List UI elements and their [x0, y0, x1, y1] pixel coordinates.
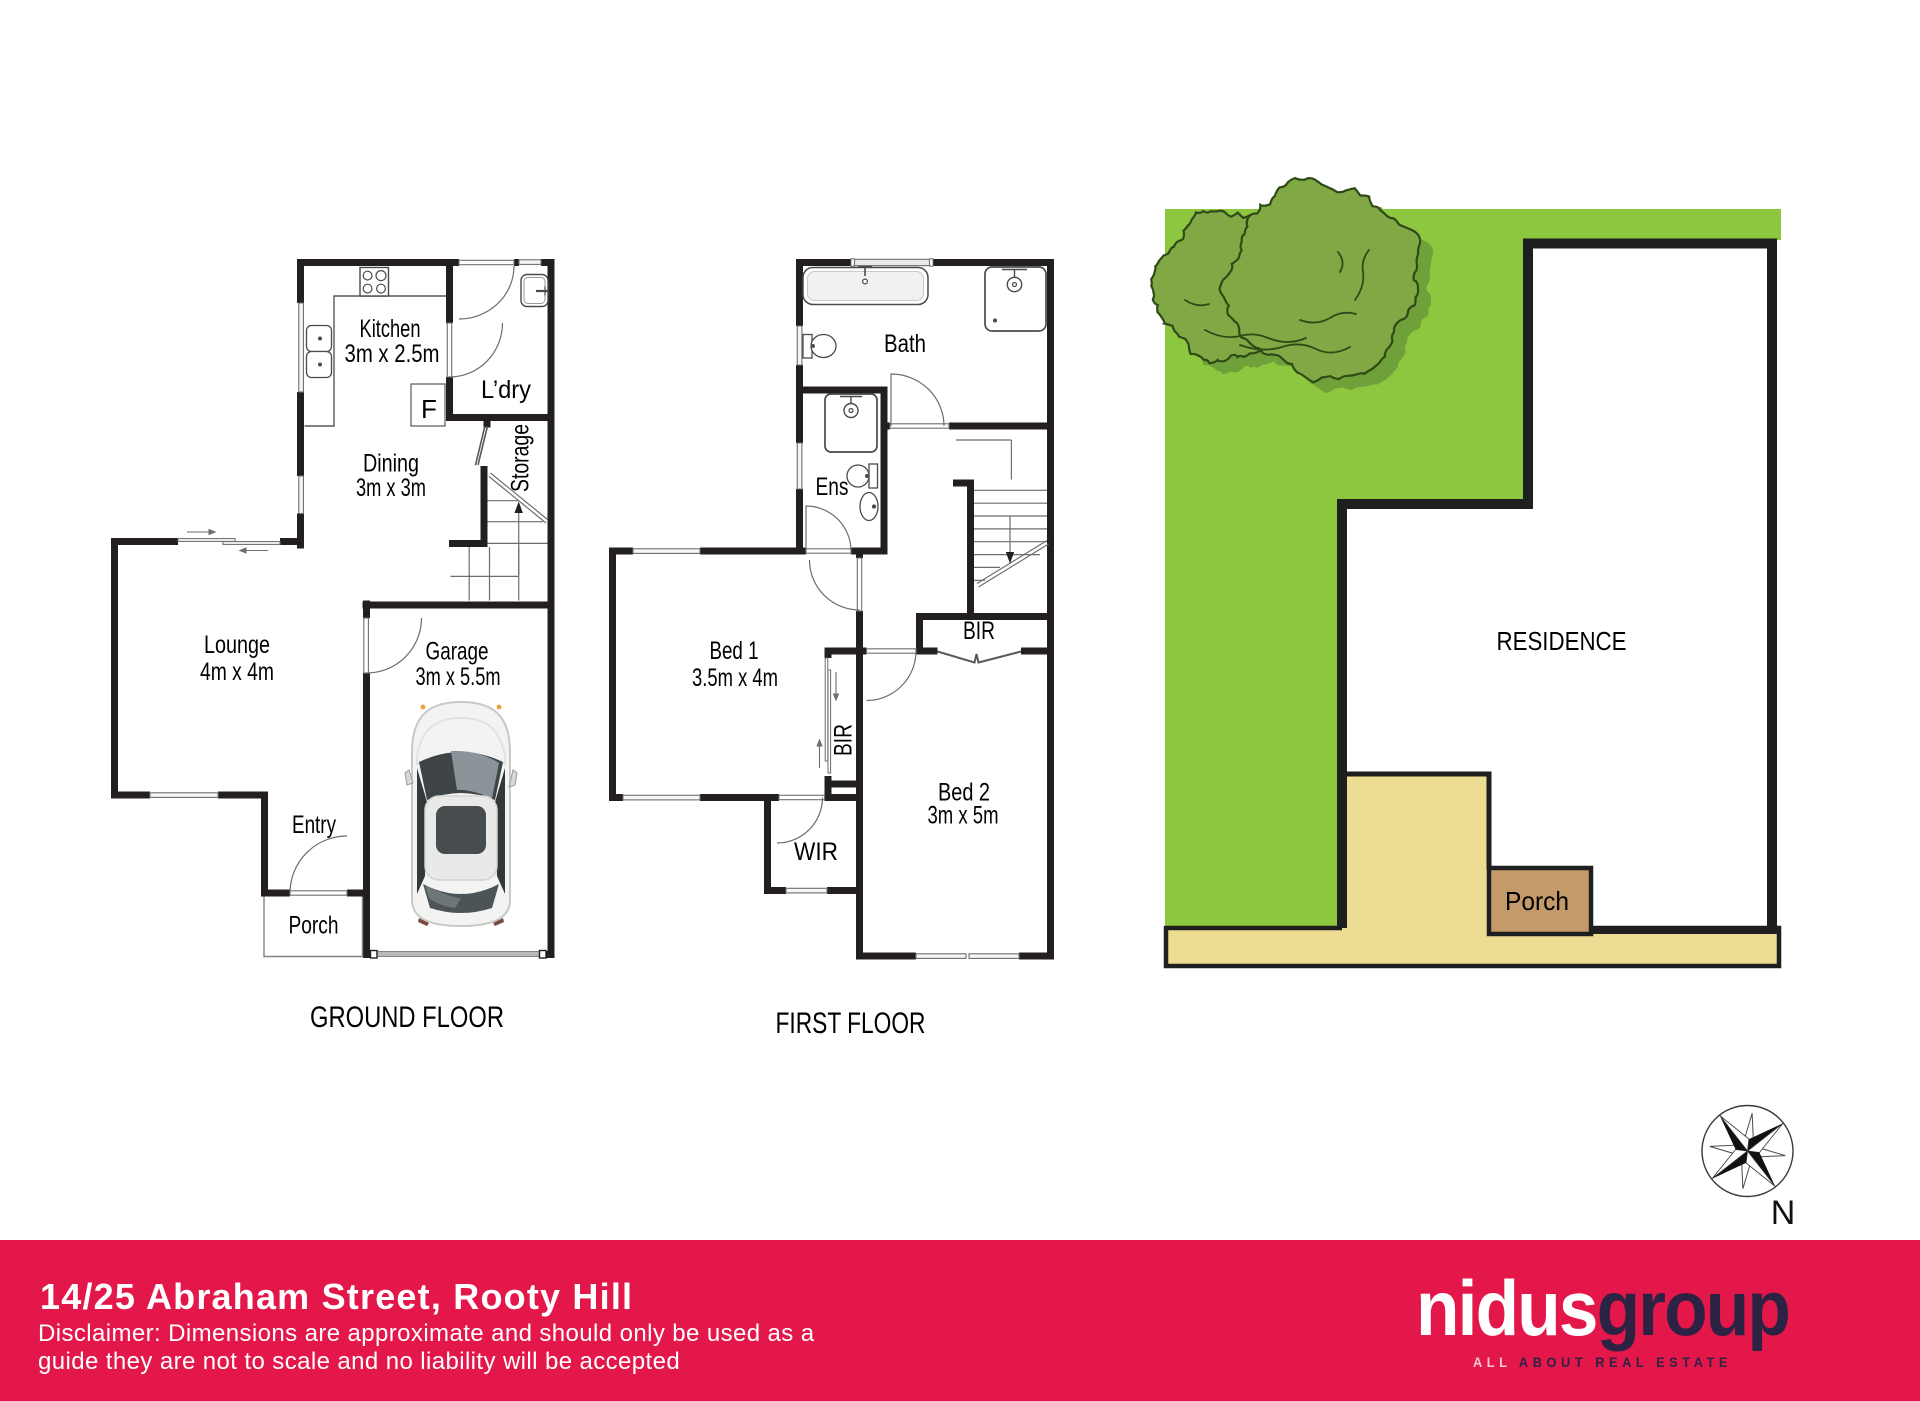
svg-text:Ens: Ens	[816, 473, 849, 501]
svg-text:Kitchen: Kitchen	[360, 315, 421, 343]
svg-text:L’dry: L’dry	[481, 376, 531, 404]
svg-text:RESIDENCE: RESIDENCE	[1497, 626, 1627, 656]
svg-text:FIRST FLOOR: FIRST FLOOR	[776, 1007, 926, 1040]
svg-text:WIR: WIR	[794, 838, 838, 866]
svg-text:N: N	[1771, 1194, 1796, 1232]
svg-text:Garage: Garage	[426, 638, 489, 666]
svg-text:Porch: Porch	[289, 912, 339, 940]
svg-text:F: F	[421, 394, 437, 424]
svg-text:3m x 5.5m: 3m x 5.5m	[416, 663, 501, 691]
svg-text:BIR: BIR	[963, 617, 995, 645]
svg-text:3m x 2.5m: 3m x 2.5m	[345, 340, 440, 368]
svg-text:Disclaimer: Dimensions are app: Disclaimer: Dimensions are approximate a…	[38, 1320, 815, 1347]
svg-text:Porch: Porch	[1505, 886, 1569, 916]
svg-text:GROUND FLOOR: GROUND FLOOR	[310, 1001, 504, 1034]
svg-text:4m x 4m: 4m x 4m	[200, 658, 274, 686]
svg-text:Entry: Entry	[292, 811, 336, 839]
svg-text:Lounge: Lounge	[204, 631, 270, 659]
svg-text:3m x 5m: 3m x 5m	[928, 802, 999, 830]
svg-text:Storage: Storage	[507, 424, 535, 492]
svg-text:14/25 Abraham Street, Rooty Hi: 14/25 Abraham Street, Rooty Hill	[40, 1276, 633, 1317]
svg-text:ALL ABOUT REAL ESTATE: ALL ABOUT REAL ESTATE	[1473, 1354, 1732, 1370]
svg-text:BIR: BIR	[830, 724, 858, 756]
svg-text:3.5m x 4m: 3.5m x 4m	[692, 664, 778, 692]
svg-text:nidusgroup: nidusgroup	[1416, 1264, 1789, 1352]
svg-text:Bath: Bath	[884, 330, 926, 358]
svg-text:3m x 3m: 3m x 3m	[356, 474, 426, 502]
svg-text:guide they are not to scale an: guide they are not to scale and no liabi…	[38, 1348, 680, 1375]
svg-text:Bed 1: Bed 1	[710, 637, 759, 665]
